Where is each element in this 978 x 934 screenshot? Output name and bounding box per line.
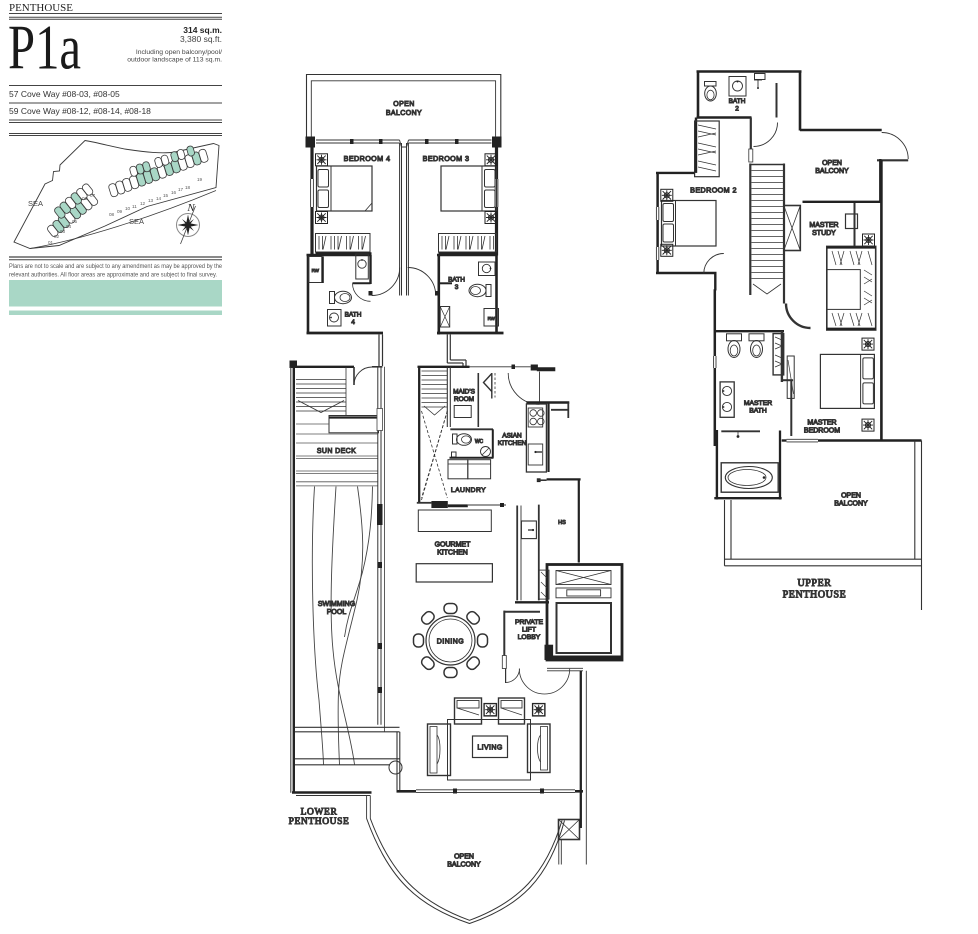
svg-text:03: 03 [60, 229, 66, 234]
svg-text:07: 07 [90, 193, 96, 198]
svg-text:02: 02 [54, 234, 60, 239]
svg-text:KITCHEN: KITCHEN [498, 440, 527, 447]
svg-text:BATH: BATH [345, 312, 362, 319]
svg-text:16: 16 [171, 190, 177, 195]
svg-text:17: 17 [178, 187, 184, 192]
svg-text:MASTER: MASTER [809, 222, 838, 229]
svg-text:SEA: SEA [129, 217, 144, 226]
svg-text:BEDROOM: BEDROOM [804, 428, 840, 435]
svg-text:MASTER: MASTER [744, 400, 772, 407]
svg-text:19: 19 [197, 177, 203, 182]
svg-text:11: 11 [132, 204, 137, 209]
svg-text:05: 05 [72, 219, 78, 224]
svg-text:P1a: P1a [8, 13, 81, 83]
svg-text:BALCONY: BALCONY [834, 501, 868, 508]
svg-text:POOL: POOL [327, 609, 347, 616]
svg-text:10: 10 [125, 206, 131, 211]
svg-text:LIFT: LIFT [522, 627, 536, 634]
svg-text:PRIVATE: PRIVATE [515, 619, 544, 626]
svg-text:relevant authorities. All floo: relevant authorities. All floor areas ar… [9, 272, 217, 279]
svg-text:57 Cove Way #08-03, #08-05: 57 Cove Way #08-03, #08-05 [9, 89, 120, 99]
svg-text:09: 09 [117, 209, 123, 214]
svg-text:RW: RW [312, 268, 320, 273]
svg-text:06: 06 [82, 196, 88, 201]
svg-text:4: 4 [351, 319, 355, 326]
svg-text:3,380 sq.ft.: 3,380 sq.ft. [180, 34, 222, 44]
svg-text:Including open balcony/pool/: Including open balcony/pool/ [136, 49, 222, 56]
svg-text:STUDY: STUDY [812, 230, 836, 237]
svg-text:OPEN: OPEN [841, 493, 861, 500]
svg-text:2: 2 [735, 106, 739, 113]
svg-text:MAID'S: MAID'S [453, 389, 475, 396]
svg-text:LOBBY: LOBBY [518, 634, 541, 641]
svg-text:BATH: BATH [749, 408, 767, 415]
svg-text:15: 15 [163, 193, 169, 198]
svg-text:LAUNDRY: LAUNDRY [451, 487, 486, 494]
svg-text:04: 04 [66, 224, 72, 229]
svg-text:BALCONY: BALCONY [815, 168, 849, 175]
svg-text:BALCONY: BALCONY [447, 862, 481, 869]
svg-text:RW: RW [488, 316, 496, 321]
svg-text:DINING: DINING [437, 639, 465, 646]
svg-text:KITCHEN: KITCHEN [437, 550, 468, 557]
svg-text:SWIMMING: SWIMMING [318, 601, 355, 608]
svg-text:BEDROOM 3: BEDROOM 3 [423, 154, 470, 163]
svg-text:01: 01 [48, 240, 54, 245]
svg-text:UPPER: UPPER [797, 578, 831, 589]
svg-text:BATH: BATH [729, 98, 746, 105]
svg-text:ASIAN: ASIAN [502, 433, 522, 440]
svg-text:OPEN: OPEN [393, 101, 414, 108]
svg-text:18: 18 [185, 185, 191, 190]
svg-text:outdoor landscape of 113 sq.m.: outdoor landscape of 113 sq.m. [127, 57, 222, 64]
svg-text:PENTHOUSE: PENTHOUSE [289, 817, 350, 827]
svg-text:WC: WC [475, 439, 484, 445]
svg-text:OPEN: OPEN [822, 160, 842, 167]
svg-text:LIVING: LIVING [477, 745, 502, 752]
svg-text:59 Cove Way #08-12, #08-14, #0: 59 Cove Way #08-12, #08-14, #08-18 [9, 106, 151, 116]
svg-text:OPEN: OPEN [454, 854, 474, 861]
svg-text:BEDROOM 2: BEDROOM 2 [690, 186, 737, 195]
svg-text:12: 12 [140, 201, 146, 206]
svg-text:SEA: SEA [28, 199, 43, 208]
svg-text:BEDROOM 4: BEDROOM 4 [344, 154, 391, 163]
svg-text:14: 14 [156, 196, 162, 201]
svg-text:Plans are not to scale and are: Plans are not to scale and are subject t… [9, 263, 222, 270]
svg-text:N: N [186, 202, 195, 214]
svg-text:HS: HS [558, 520, 566, 526]
svg-text:08: 08 [109, 212, 115, 217]
svg-text:ROOM: ROOM [454, 396, 474, 403]
svg-text:PENTHOUSE: PENTHOUSE [783, 590, 847, 601]
svg-text:13: 13 [148, 198, 154, 203]
svg-text:BALCONY: BALCONY [386, 110, 422, 117]
svg-text:MASTER: MASTER [807, 420, 836, 427]
svg-text:GOURMET: GOURMET [435, 542, 472, 549]
svg-text:SUN DECK: SUN DECK [317, 448, 356, 455]
